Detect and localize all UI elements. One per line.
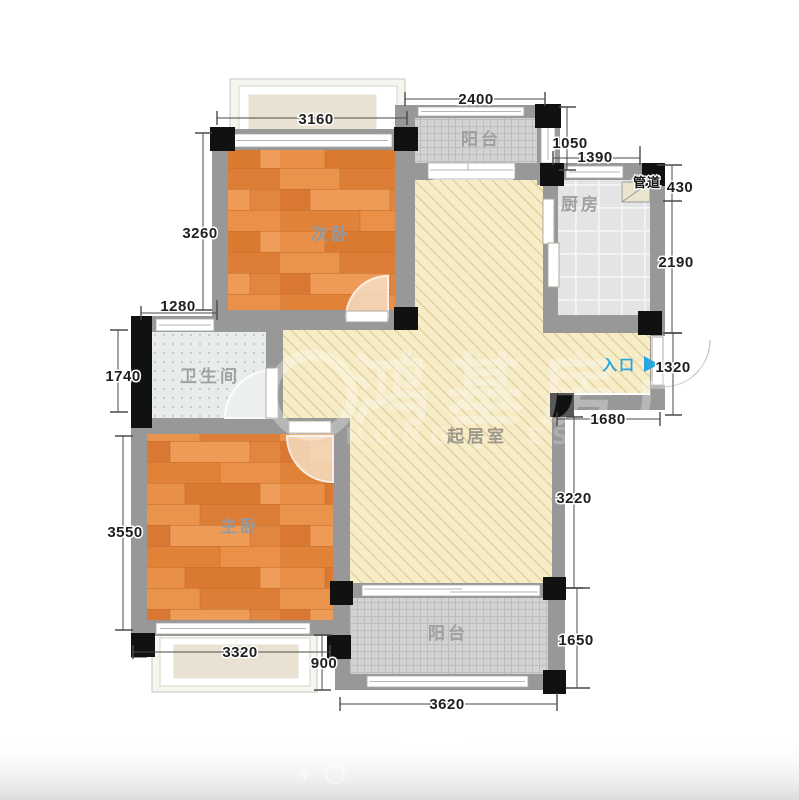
svg-text:1740: 1740: [105, 368, 140, 385]
svg-text:3550: 3550: [107, 524, 142, 541]
svg-text:1320: 1320: [655, 359, 690, 376]
svg-text:3320: 3320: [222, 644, 257, 661]
svg-text:3160: 3160: [298, 111, 333, 128]
label-duct: 管道: [633, 175, 661, 191]
label-master-bedroom: 主卧: [220, 516, 260, 537]
label-living-room: 起居室: [446, 426, 507, 447]
label-kitchen: 厨房: [561, 194, 601, 215]
bay-window-bottom: [152, 634, 317, 692]
svg-text:3620: 3620: [429, 696, 464, 713]
label-bathroom: 卫生间: [180, 366, 240, 387]
svg-text:3260: 3260: [182, 225, 217, 242]
svg-text:2400: 2400: [458, 91, 493, 108]
svg-text:1680: 1680: [590, 411, 625, 428]
label-balcony-top: 阳台: [461, 129, 501, 150]
label-secondary-bedroom: 次卧: [311, 224, 351, 245]
svg-text:2190: 2190: [658, 254, 693, 271]
entrance-label: 入口: [602, 356, 636, 374]
svg-text:1390: 1390: [577, 149, 612, 166]
svg-text:1650: 1650: [558, 632, 593, 649]
svg-text:430: 430: [667, 179, 694, 196]
floor-plan-canvas: 鸿基房产 HONG JI ESTATE 次卧 阳台 厨房 管道 卫生间 起居室 …: [0, 0, 799, 800]
svg-text:1280: 1280: [160, 298, 195, 315]
svg-text:900: 900: [311, 655, 338, 672]
bottom-fade-band: [0, 738, 799, 800]
label-balcony-bottom: 阳台: [428, 623, 468, 644]
svg-text:3220: 3220: [556, 490, 591, 507]
